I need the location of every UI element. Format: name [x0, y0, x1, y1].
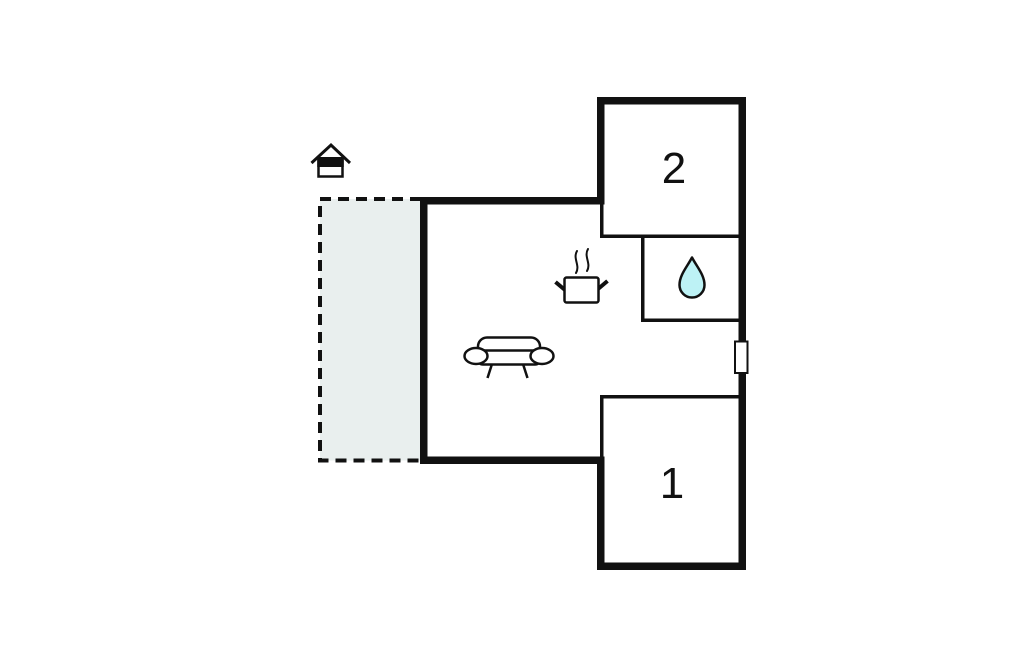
water-drop-icon: [680, 258, 705, 298]
wall-outer-right: [739, 97, 747, 570]
sofa-armrest-left: [465, 348, 488, 364]
wall-living-top: [420, 197, 605, 205]
wall-room1-left-upper: [600, 395, 604, 458]
wall-room2-left: [597, 97, 605, 204]
house-icon: [312, 145, 351, 177]
wall-room2-top: [597, 97, 746, 105]
terrace-area: [320, 199, 421, 461]
walls: [420, 97, 746, 570]
sofa-armrest-right: [531, 348, 554, 364]
sofa-leg-right: [523, 364, 528, 378]
wall-living-bottom: [420, 457, 605, 465]
wall-bathroom-top: [600, 235, 740, 239]
wall-room2-left-lower: [600, 204, 604, 236]
cooking-pot-icon: [556, 249, 608, 303]
room-1-label: 1: [660, 459, 684, 508]
house-band: [317, 157, 344, 167]
window-marker: [735, 342, 748, 374]
wall-room1-bottom: [597, 563, 746, 571]
pot-body: [565, 278, 599, 303]
water-drop-shape: [680, 258, 705, 298]
room-2-label: 2: [662, 144, 686, 193]
steam-line-left: [576, 251, 578, 273]
wall-bathroom-left: [641, 235, 645, 323]
floor-plan: 2 1: [0, 0, 1024, 652]
floor-plan-page: 2 1: [0, 0, 1024, 652]
sofa-icon: [465, 338, 554, 379]
terrace-fill: [320, 199, 421, 461]
wall-bathroom-bottom: [641, 319, 740, 323]
sofa-leg-left: [488, 364, 493, 378]
window-marker-rect: [735, 342, 748, 374]
wall-room1-left: [597, 457, 605, 571]
steam-line-right: [587, 249, 589, 271]
wall-room1-top: [600, 395, 740, 399]
wall-living-left: [420, 197, 428, 464]
